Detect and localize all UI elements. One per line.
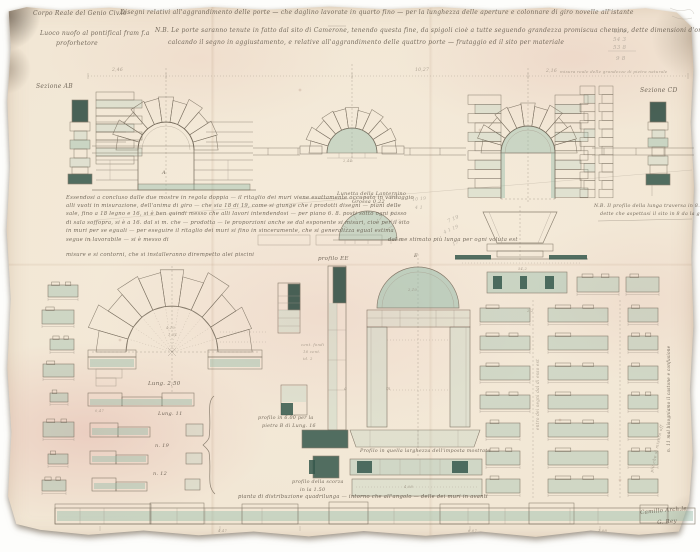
paper-sheet xyxy=(6,5,694,539)
scanned-drawing-page: Corpo Reale del Genio Civ.leDisegni rela… xyxy=(0,0,700,552)
sheet-wrap xyxy=(0,0,700,552)
